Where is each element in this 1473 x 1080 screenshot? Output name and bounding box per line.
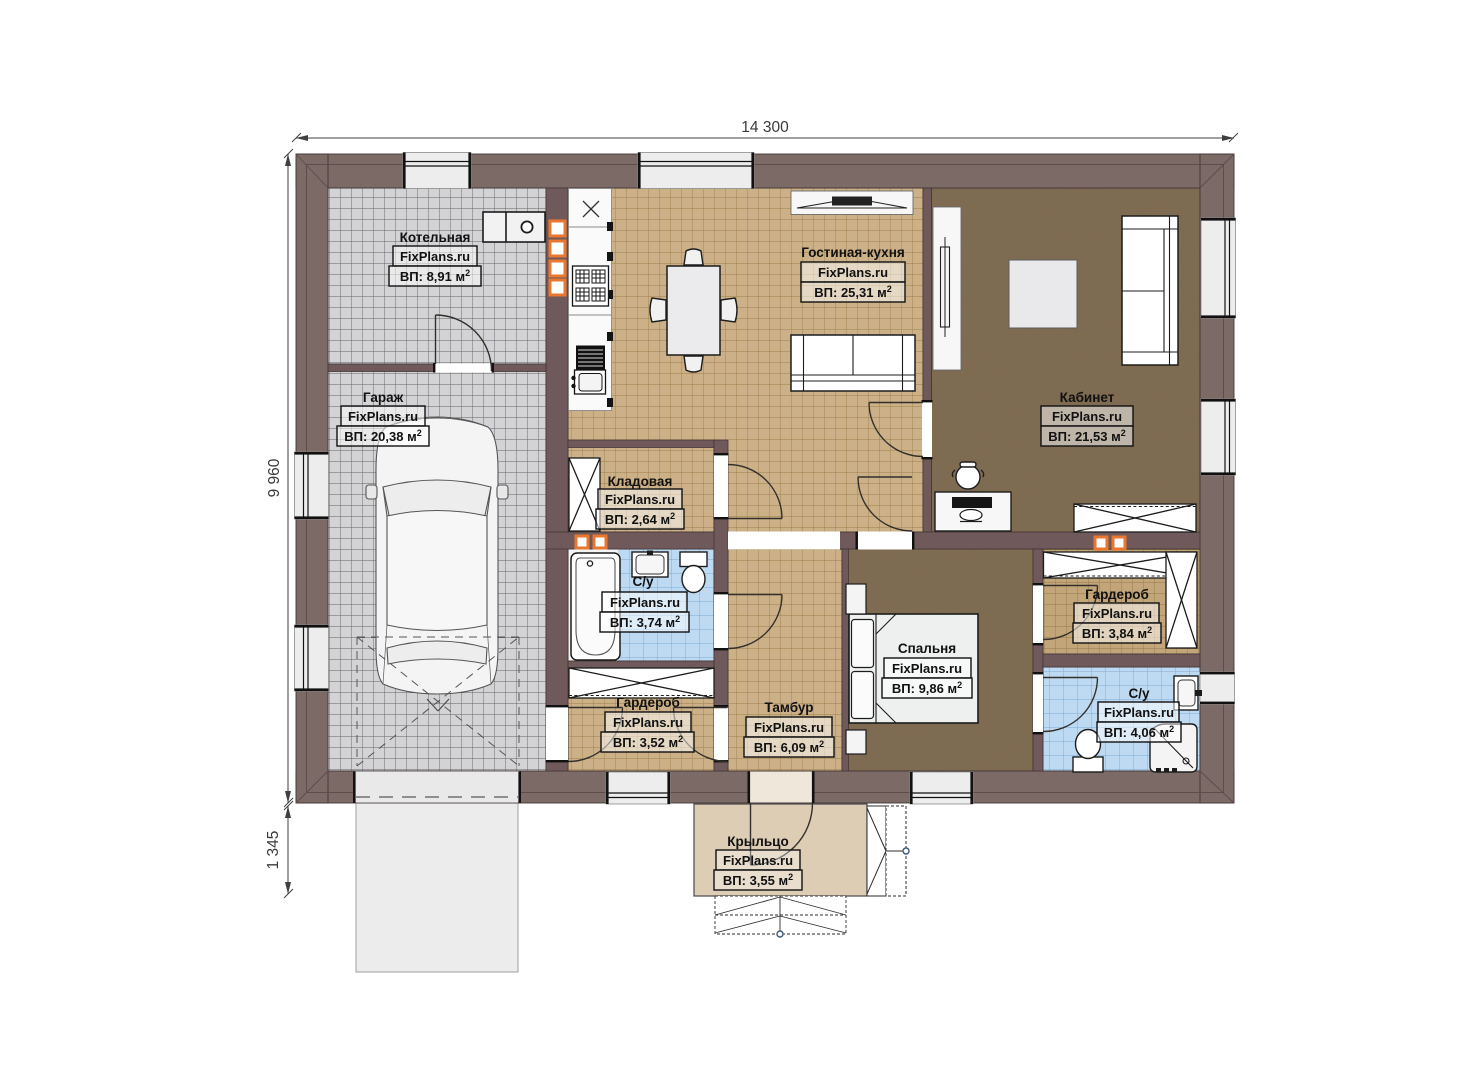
svg-text:Гостиная-кухня: Гостиная-кухня [801,245,904,260]
svg-text:FixPlans.ru: FixPlans.ru [610,595,680,610]
svg-text:ВП: 6,09 м2: ВП: 6,09 м2 [754,739,824,755]
svg-text:Гардероб: Гардероб [616,695,680,710]
svg-text:1 345: 1 345 [265,831,282,870]
svg-text:Гардероб: Гардероб [1085,587,1149,602]
svg-text:FixPlans.ru: FixPlans.ru [892,661,962,676]
svg-text:ВП: 20,38 м2: ВП: 20,38 м2 [344,428,421,444]
svg-text:Котельная: Котельная [400,230,471,245]
svg-text:FixPlans.ru: FixPlans.ru [605,492,675,507]
svg-text:FixPlans.ru: FixPlans.ru [723,853,793,868]
svg-text:FixPlans.ru: FixPlans.ru [400,249,470,264]
svg-text:9 960: 9 960 [266,458,283,497]
svg-text:ВП: 4,06 м2: ВП: 4,06 м2 [1104,724,1174,740]
svg-text:ВП: 8,91 м2: ВП: 8,91 м2 [400,268,470,284]
svg-text:FixPlans.ru: FixPlans.ru [818,265,888,280]
svg-text:Кладовая: Кладовая [608,474,673,489]
svg-text:С/у: С/у [632,574,654,589]
svg-text:FixPlans.ru: FixPlans.ru [613,715,683,730]
svg-text:ВП: 3,55 м2: ВП: 3,55 м2 [723,872,793,888]
svg-text:FixPlans.ru: FixPlans.ru [754,720,824,735]
svg-text:Крыльцо: Крыльцо [727,834,788,849]
svg-text:С/у: С/у [1128,686,1150,701]
svg-text:ВП: 3,74 м2: ВП: 3,74 м2 [610,614,680,630]
svg-text:ВП: 25,31 м2: ВП: 25,31 м2 [814,284,891,300]
svg-text:FixPlans.ru: FixPlans.ru [1104,705,1174,720]
svg-text:FixPlans.ru: FixPlans.ru [348,409,418,424]
svg-text:ВП: 9,86 м2: ВП: 9,86 м2 [892,680,962,696]
svg-text:Тамбур: Тамбур [765,700,814,715]
svg-text:Гараж: Гараж [363,390,404,405]
svg-text:ВП: 21,53 м2: ВП: 21,53 м2 [1048,428,1125,444]
svg-text:ВП: 2,64 м2: ВП: 2,64 м2 [605,511,675,527]
svg-text:FixPlans.ru: FixPlans.ru [1052,409,1122,424]
svg-text:Кабинет: Кабинет [1060,390,1115,405]
svg-text:ВП: 3,52 м2: ВП: 3,52 м2 [613,734,683,750]
svg-text:FixPlans.ru: FixPlans.ru [1082,606,1152,621]
svg-text:Спальня: Спальня [898,641,956,656]
svg-text:ВП: 3,84 м2: ВП: 3,84 м2 [1082,625,1152,641]
svg-text:14 300: 14 300 [741,119,789,136]
